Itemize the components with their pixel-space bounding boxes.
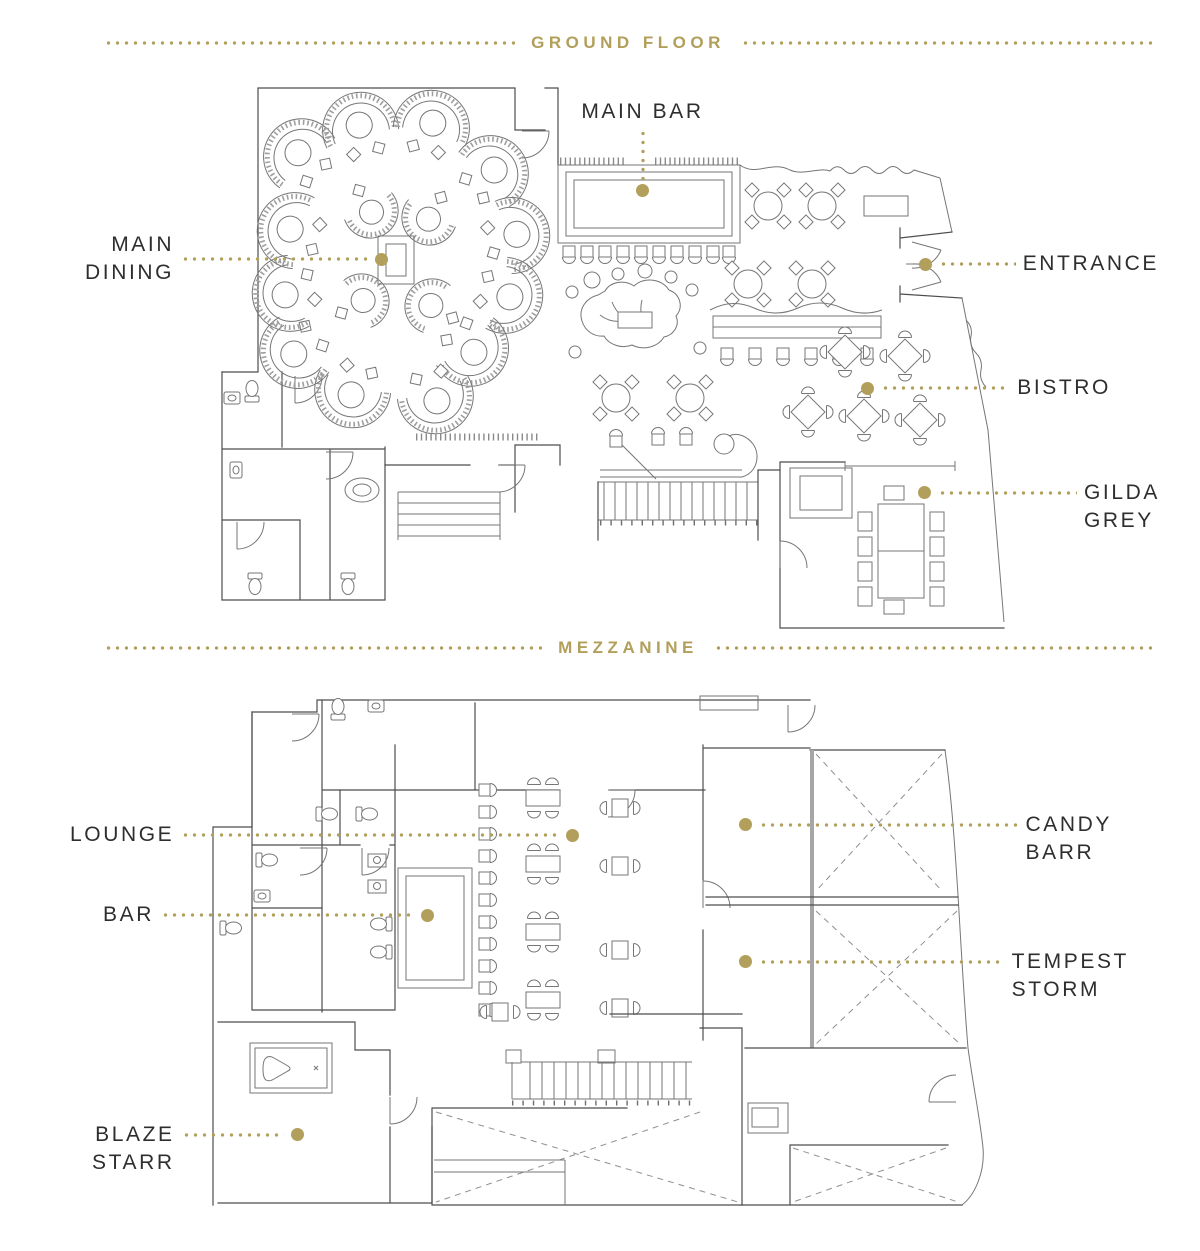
ground-floor-header: GROUND FLOOR [104, 32, 1152, 54]
leader-dot [375, 253, 388, 266]
bottom-right-rooms [742, 1075, 962, 1205]
leader-dot [739, 955, 752, 968]
leader-dots [182, 1132, 284, 1138]
header-dotted-rule [741, 40, 1152, 46]
ground-stairs [385, 428, 780, 541]
label-tempest-storm: TEMPEST STORM [739, 948, 1129, 1004]
leader-dots [881, 385, 1010, 391]
mezzanine-header: MEZZANINE [104, 637, 1152, 659]
leader-dots [759, 822, 1018, 828]
leader-dots [938, 490, 1077, 496]
leader-dot [739, 818, 752, 831]
entrance-label: ENTRANCE [1023, 250, 1159, 278]
mezzanine-restrooms [220, 699, 395, 1011]
leader-dot [566, 829, 579, 842]
blaze-starr-label: BLAZE STARR [92, 1121, 175, 1177]
main-bar-label: MAIN BAR [581, 98, 703, 126]
leader-dots [640, 129, 646, 181]
label-main-bar: MAIN BAR [560, 98, 725, 197]
label-entrance: ENTRANCE [919, 250, 1159, 278]
candy-barr-label: CANDY BARR [1025, 811, 1112, 867]
bistro-label: BISTRO [1017, 374, 1111, 402]
lounge-sofa [566, 264, 706, 358]
floorplan-poster: GROUND FLOOR MEZZANINE MAIN BAR MAIN DIN… [0, 0, 1200, 1246]
header-dotted-rule [104, 40, 515, 46]
mezzanine-title: MEZZANINE [558, 638, 698, 658]
leader-dot [421, 909, 434, 922]
leader-dots [161, 912, 414, 918]
leader-dots [181, 256, 368, 262]
label-main-dining: MAIN DINING [85, 231, 388, 287]
leader-dot [291, 1128, 304, 1141]
mezzanine-stairs [506, 1050, 692, 1103]
bar-label: BAR [103, 901, 154, 929]
mezzanine-bar [398, 784, 497, 1017]
label-blaze-starr: BLAZE STARR [92, 1121, 304, 1177]
ground-floor-title: GROUND FLOOR [531, 33, 725, 53]
leader-dot [861, 382, 874, 395]
label-bar: BAR [103, 901, 434, 929]
leader-dot [918, 486, 931, 499]
open-to-below [432, 1108, 742, 1205]
gilda-grey-label: GILDA GREY [1084, 479, 1160, 535]
leader-dot [919, 258, 932, 271]
ground-restrooms [222, 372, 385, 600]
label-gilda-grey: GILDA GREY [918, 479, 1160, 535]
page: { "colors": { "accent_gold": "#b29f5b", … [0, 0, 1200, 1246]
leader-dots [759, 959, 1005, 965]
leader-dot [636, 184, 649, 197]
main-dining-label: MAIN DINING [85, 231, 174, 287]
header-dotted-rule [714, 645, 1152, 651]
leader-dots [181, 832, 559, 838]
lounge-label: LOUNGE [70, 821, 174, 849]
label-lounge: LOUNGE [70, 821, 579, 849]
label-bistro: BISTRO [861, 374, 1111, 402]
lounge-tables [480, 778, 640, 1021]
tempest-storm-label: TEMPEST STORM [1012, 948, 1129, 1004]
header-dotted-rule [104, 645, 542, 651]
leader-dots [939, 261, 1016, 267]
label-candy-barr: CANDY BARR [739, 811, 1112, 867]
